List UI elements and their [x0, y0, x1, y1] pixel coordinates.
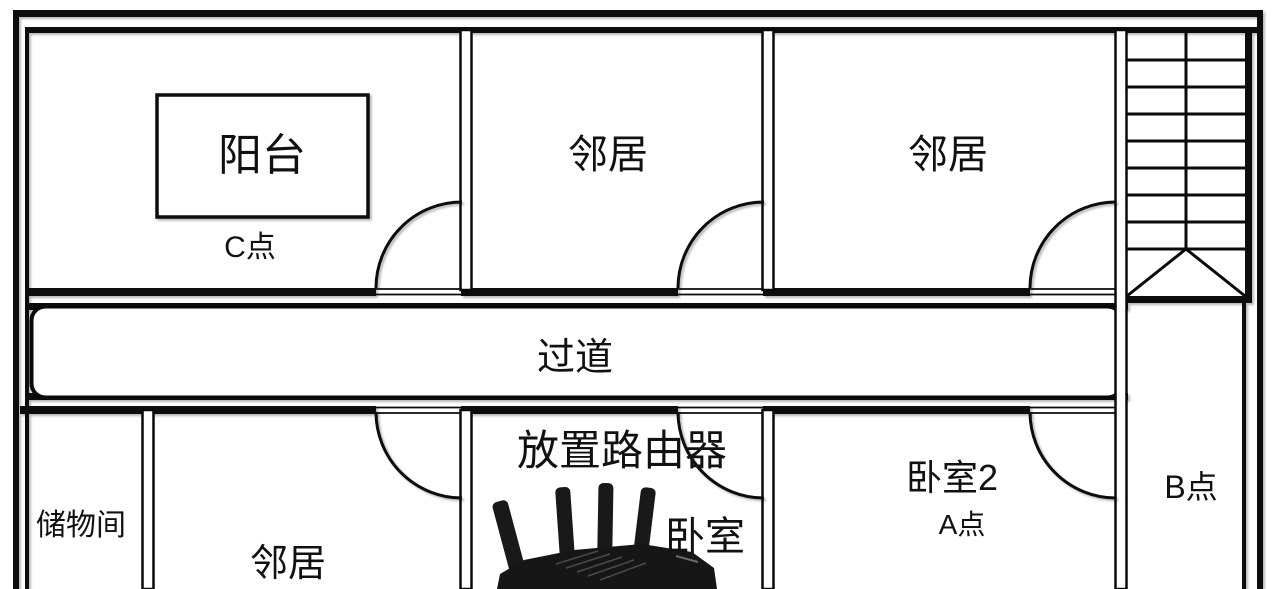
measure-point-b-label: B点 — [1164, 471, 1217, 503]
room-label-neighbor-top-right: 邻居 — [908, 135, 988, 175]
room-label-neighbor-top-left: 邻居 — [568, 135, 648, 175]
router-placement-label: 放置路由器 — [517, 430, 727, 472]
measure-point-c-label: C点 — [224, 233, 276, 263]
room-label-corridor: 过道 — [537, 339, 613, 377]
room-label-bedroom: 卧室 — [665, 517, 745, 557]
room-label-storage: 储物间 — [36, 511, 126, 541]
room-label-bedroom-2: 卧室2 — [906, 460, 998, 496]
room-label-balcony: 阳台 — [218, 134, 306, 178]
staircase-icon — [1127, 33, 1246, 296]
measure-point-a-label: A点 — [939, 511, 986, 539]
floor-plan-drawing — [0, 0, 1280, 589]
floor-plan: 阳台 C点 邻居 邻居 过道 储物间 邻居 放置路由器 卧室 卧室2 A点 B点 — [0, 0, 1280, 589]
room-label-neighbor-bottom: 邻居 — [250, 545, 326, 583]
